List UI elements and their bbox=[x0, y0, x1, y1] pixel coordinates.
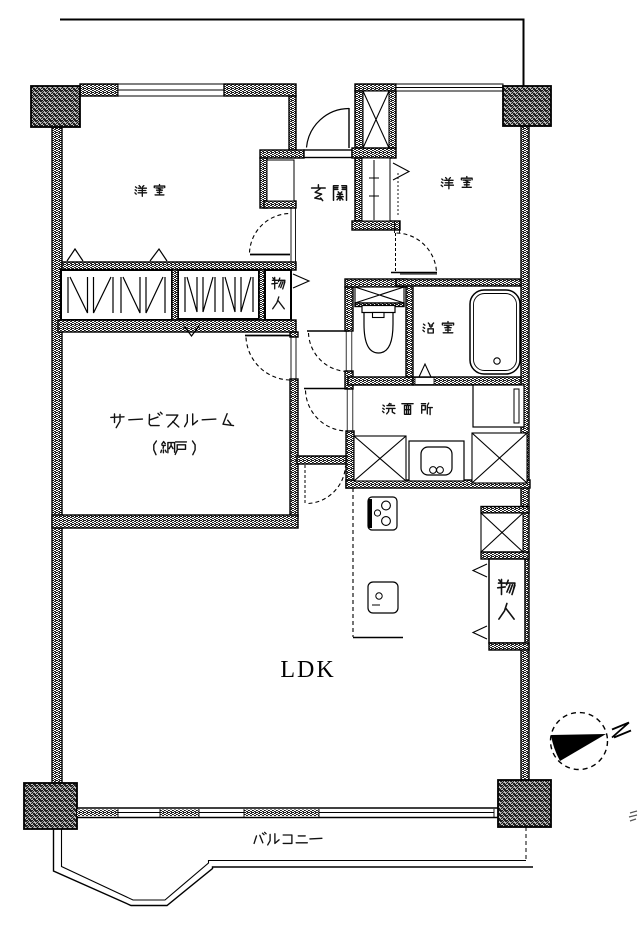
svg-text:LDK: LDK bbox=[280, 657, 335, 683]
